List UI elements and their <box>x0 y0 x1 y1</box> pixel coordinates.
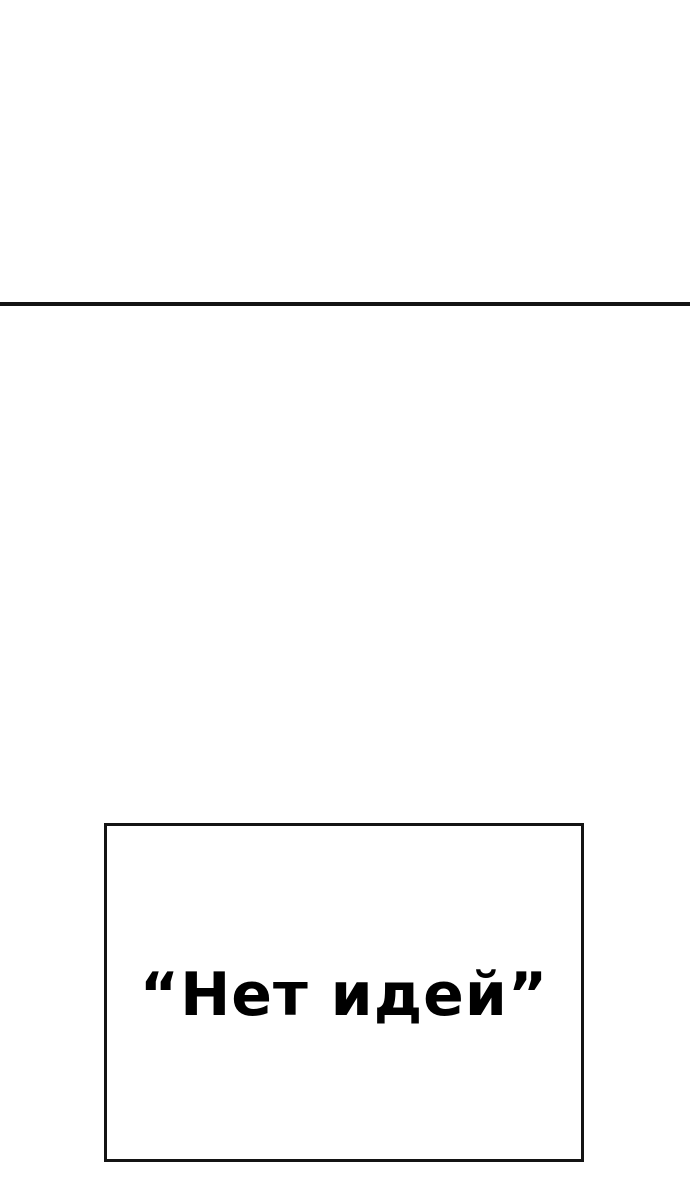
quote-text: “Нет идей” <box>140 960 549 1030</box>
comic-page: “Нет идей” <box>0 0 690 1194</box>
panel-divider-line <box>0 302 690 306</box>
quote-panel: “Нет идей” <box>104 823 584 1162</box>
